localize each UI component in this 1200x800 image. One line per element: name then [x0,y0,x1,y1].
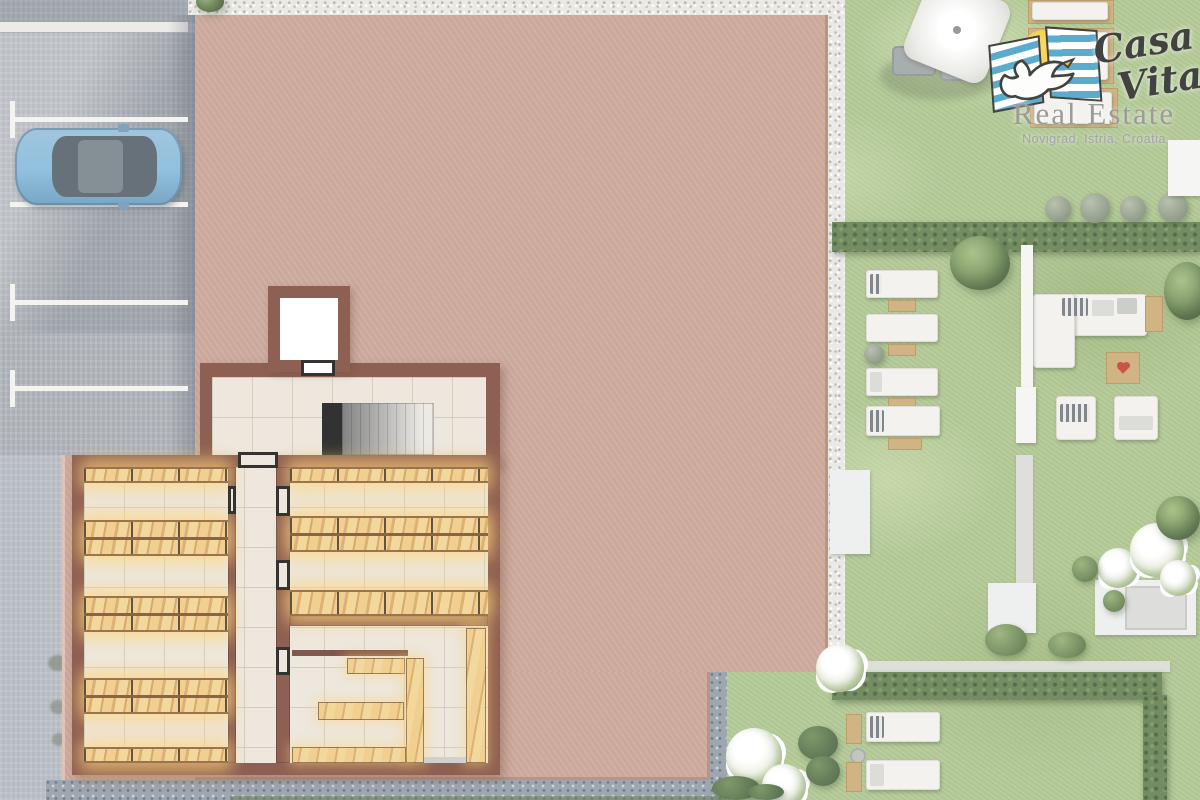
storage-rack-row [290,516,488,552]
parked-car [15,128,182,205]
logo-location: Novigrad, Istria, Croatia [999,132,1189,146]
lounger-pillow [870,410,884,432]
sofa-pillow [1092,300,1114,316]
storage-bench-vertical [406,658,424,763]
bush [748,784,784,800]
coffee-table [1106,352,1140,384]
hedge-right-vertical [1143,695,1167,800]
storage-bench [318,702,404,720]
car-mirror [118,201,129,209]
casa-vita-logo: Casa Vita Real Estate Novigrad, Istria, … [985,18,1197,150]
ottoman-pillow [1119,416,1153,430]
bush [1158,192,1188,222]
parking-line [10,386,188,391]
car-mirror [118,124,129,132]
storage-rack-row [84,520,228,556]
storage-rack-row [84,678,228,714]
storage-rack-row [84,467,228,483]
site-plan-rendering: Casa Vita Real Estate Novigrad, Istria, … [0,0,1200,800]
partition-wall [292,650,408,656]
side-table [1145,296,1163,332]
hedge-lower [832,672,1162,700]
lounger-pillow [870,372,882,392]
storage-rack-row [84,747,228,763]
hedge-upper [832,222,1200,252]
bush [1048,632,1086,658]
elevator-door [301,360,335,376]
parking-line [10,117,188,122]
sun-lounger [866,368,938,396]
sofa-pillow [1117,298,1137,314]
ottoman [1056,396,1096,440]
deck-mat [888,344,916,356]
room-door [276,486,290,516]
sun-lounger [866,760,940,790]
parking-line [10,300,188,305]
storage-rack-row [290,590,488,616]
stone-path [845,661,1170,672]
garden-divider-fence [1021,245,1033,387]
sofa-pillow [1062,298,1088,316]
lounger-pillow [870,764,884,786]
storage-bench-vertical [466,628,486,763]
storage-rack-row [84,596,228,632]
stair-landing-void [322,403,342,455]
patio [830,470,870,554]
deck-mat [888,438,922,450]
bush [1103,590,1125,612]
stair-treads [342,403,434,455]
gravel-border-right [828,15,845,660]
garden-path [1016,455,1033,587]
garden-divider-gate [1016,387,1036,443]
lounger-pillow [870,274,882,294]
pavement-upper-shade [0,0,195,22]
storage-bench [292,747,406,763]
deck-mat [846,762,862,792]
lounger-pillow [870,716,884,738]
bush [1120,196,1146,222]
bush [985,624,1027,656]
ottoman [1114,396,1158,440]
bottom-edge-greenery [230,796,730,800]
parking-line-tick [10,284,15,321]
sidewalk-band [0,22,188,32]
sun-lounger [866,314,938,342]
tree [1156,496,1200,540]
gravel-band-corner [710,672,727,780]
sun-lounger [866,270,938,298]
tree [950,236,1010,290]
deck-mat [846,714,862,744]
bush [1080,193,1110,223]
sun-lounger [866,712,940,742]
storage-bench [347,658,405,674]
deck-mat [888,300,916,312]
car-roof [78,140,123,193]
logo-subtitle: Real Estate [999,96,1189,132]
bush [798,726,838,760]
bush [864,344,884,364]
flowering-shrub [1160,560,1196,596]
bush [1072,556,1098,582]
umbrella-pole [953,26,961,34]
room-door [228,486,236,514]
storage-rack-row [290,467,488,483]
parking-line-tick [10,370,15,407]
ottoman-pillow [1060,404,1090,422]
heart-decor-icon [1123,362,1130,369]
room-door [276,560,290,590]
stair-flight [342,403,434,455]
door-threshold [424,757,466,763]
bush [1045,196,1071,222]
room-door [276,647,290,675]
bush [806,756,840,786]
room-divider-wall [290,616,488,626]
sun-lounger [866,406,940,436]
gravel-border-top [188,0,845,15]
flowering-shrub [816,644,864,692]
corridor-door [238,452,278,468]
